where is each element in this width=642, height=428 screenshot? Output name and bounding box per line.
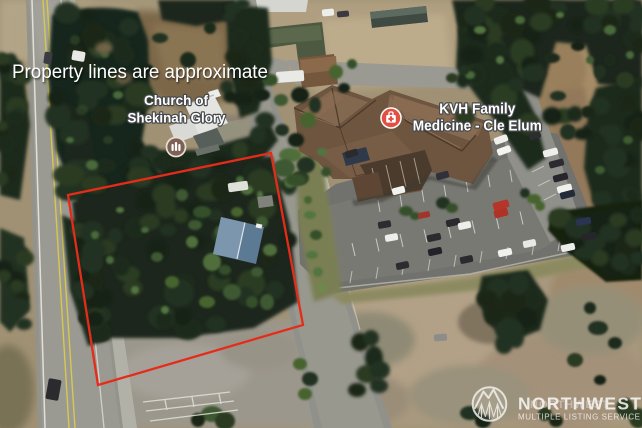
svg-text:Property lines are approximate: Property lines are approximate (12, 62, 268, 83)
svg-text:NORTHWEST: NORTHWEST (518, 394, 641, 414)
svg-text:Medicine - Cle Elum: Medicine - Cle Elum (413, 118, 542, 135)
svg-text:Shekinah Glory: Shekinah Glory (128, 111, 226, 126)
svg-text:MULTIPLE LISTING SERVICE: MULTIPLE LISTING SERVICE (518, 413, 640, 422)
svg-text:Church of: Church of (144, 93, 208, 108)
svg-text:KVH Family: KVH Family (439, 101, 516, 118)
